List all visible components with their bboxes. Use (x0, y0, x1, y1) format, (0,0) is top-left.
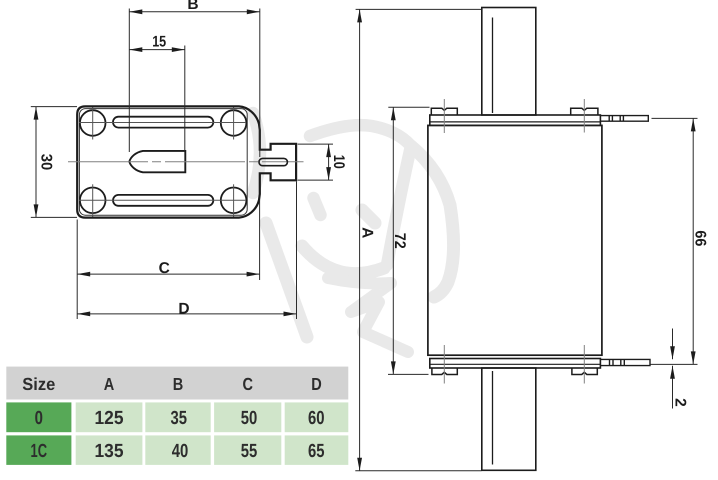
svg-text:55: 55 (241, 441, 258, 462)
svg-text:10: 10 (330, 155, 347, 169)
svg-text:1C: 1C (31, 441, 48, 462)
svg-text:D: D (311, 374, 322, 394)
svg-text:0: 0 (35, 408, 43, 429)
svg-text:50: 50 (241, 408, 258, 429)
svg-text:15: 15 (152, 34, 166, 51)
svg-text:C: C (159, 260, 170, 277)
svg-text:A: A (104, 374, 115, 394)
svg-text:30: 30 (38, 154, 55, 171)
svg-text:66: 66 (691, 230, 708, 246)
svg-text:135: 135 (95, 441, 124, 462)
svg-text:B: B (173, 374, 184, 394)
svg-text:2: 2 (672, 398, 689, 407)
svg-text:125: 125 (95, 408, 124, 429)
svg-text:40: 40 (172, 441, 189, 462)
svg-text:60: 60 (308, 408, 325, 429)
svg-text:A: A (358, 227, 375, 238)
svg-text:D: D (178, 300, 189, 317)
svg-text:C: C (242, 374, 253, 394)
svg-text:72: 72 (391, 233, 408, 249)
svg-text:Size: Size (22, 374, 55, 394)
svg-text:B: B (187, 0, 198, 13)
svg-text:35: 35 (171, 408, 188, 429)
svg-text:65: 65 (308, 441, 325, 462)
